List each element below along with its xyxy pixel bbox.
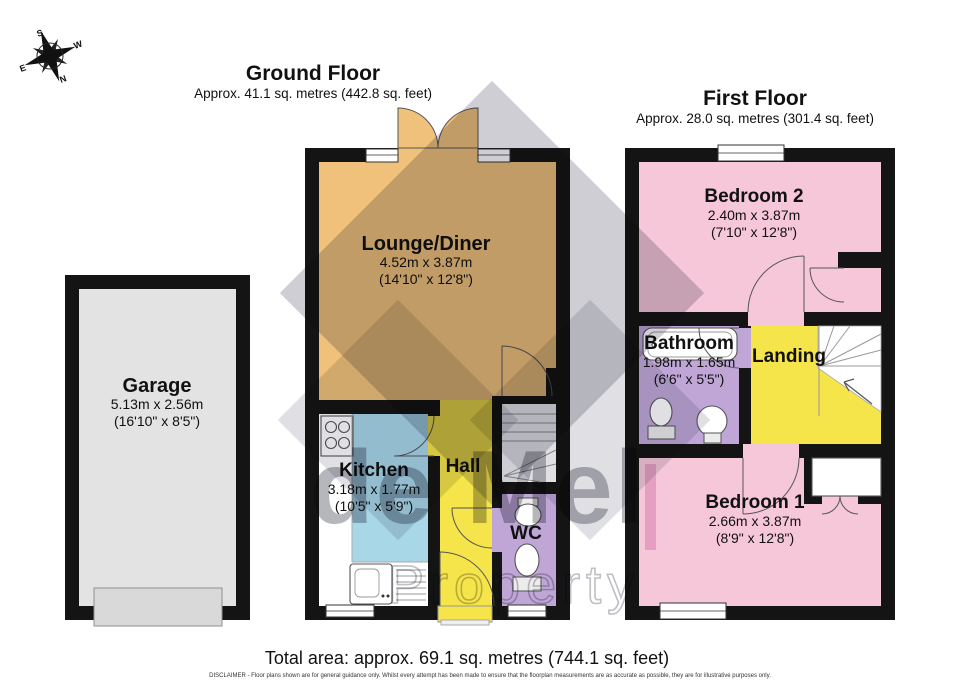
- bedroom1-label: Bedroom 1 2.66m x 3.87m (8'9" x 12'8"): [705, 493, 804, 547]
- bedroom2-window: [718, 145, 784, 161]
- room-dim-metric: 2.66m x 3.87m: [705, 513, 804, 530]
- room-dim-imperial: (10'5" x 5'9"): [328, 498, 421, 515]
- room-dim-imperial: (7'10" x 12'8"): [704, 224, 803, 241]
- room-dim-imperial: (16'10" x 8'5"): [111, 413, 204, 430]
- ground-floor-area: Approx. 41.1 sq. metres (442.8 sq. feet): [194, 86, 432, 101]
- compass-icon: S W N E: [15, 21, 84, 90]
- garage-label: Garage 5.13m x 2.56m (16'10" x 8'5"): [111, 376, 204, 430]
- first-floor-area: Approx. 28.0 sq. metres (301.4 sq. feet): [636, 111, 874, 126]
- room-name: Lounge/Diner: [362, 234, 491, 254]
- landing-label: Landing: [752, 347, 826, 367]
- first-floor-title: First Floor: [703, 87, 807, 111]
- total-area: Total area: approx. 69.1 sq. metres (744…: [265, 648, 669, 669]
- room-name: Kitchen: [328, 461, 421, 481]
- radiator: [645, 464, 656, 550]
- garage-plan: [65, 275, 250, 626]
- hall-label: Hall: [446, 457, 481, 477]
- room-name: Landing: [752, 347, 826, 367]
- room-name: Bedroom 1: [705, 493, 804, 513]
- room-name: Bedroom 2: [704, 187, 803, 207]
- room-dim-imperial: (8'9" x 12'8"): [705, 530, 804, 547]
- lounge-label: Lounge/Diner 4.52m x 3.87m (14'10" x 12'…: [362, 234, 491, 288]
- room-dim-imperial: (14'10" x 12'8"): [362, 271, 491, 288]
- wc-toilet: [513, 544, 541, 591]
- room-name: Bathroom: [643, 334, 736, 354]
- compass-south-label: S: [35, 27, 44, 38]
- ground-floor-title: Ground Floor: [246, 62, 380, 86]
- wc-label: WC: [510, 524, 542, 544]
- ground-floor-plan: [305, 108, 570, 625]
- compass-east-label: E: [18, 62, 27, 73]
- garage-room: [79, 289, 236, 606]
- room-dim-metric: 2.40m x 3.87m: [704, 207, 803, 224]
- wc-window: [508, 605, 546, 617]
- window: [366, 149, 398, 162]
- wc-basin: [515, 498, 541, 526]
- garage-door: [94, 588, 222, 626]
- compass-west-label: W: [72, 38, 84, 50]
- room-dim-metric: 3.18m x 1.77m: [328, 481, 421, 498]
- bedroom1-window: [660, 603, 726, 619]
- room-name: Hall: [446, 457, 481, 477]
- bathroom-label: Bathroom 1.98m x 1.65m (6'6" x 5'5"): [643, 334, 736, 388]
- room-dim-metric: 4.52m x 3.87m: [362, 254, 491, 271]
- french-doors: [398, 108, 478, 148]
- kitchen-window: [326, 605, 374, 617]
- bedroom2-label: Bedroom 2 2.40m x 3.87m (7'10" x 12'8"): [704, 187, 803, 241]
- floorplan-page: S W N E: [0, 0, 980, 690]
- compass-north-label: N: [58, 73, 68, 85]
- floorplan-drawing: S W N E: [0, 0, 980, 690]
- room-dim-imperial: (6'6" x 5'5"): [643, 371, 736, 388]
- room-dim-metric: 5.13m x 2.56m: [111, 396, 204, 413]
- room-name: WC: [510, 524, 542, 544]
- window: [478, 149, 510, 162]
- hob: [321, 416, 353, 456]
- room-name: Garage: [111, 376, 204, 396]
- kitchen-label: Kitchen 3.18m x 1.77m (10'5" x 5'9"): [328, 461, 421, 515]
- room-dim-metric: 1.98m x 1.65m: [643, 354, 736, 371]
- disclaimer: DISCLAIMER - Floor plans shown are for g…: [209, 673, 771, 679]
